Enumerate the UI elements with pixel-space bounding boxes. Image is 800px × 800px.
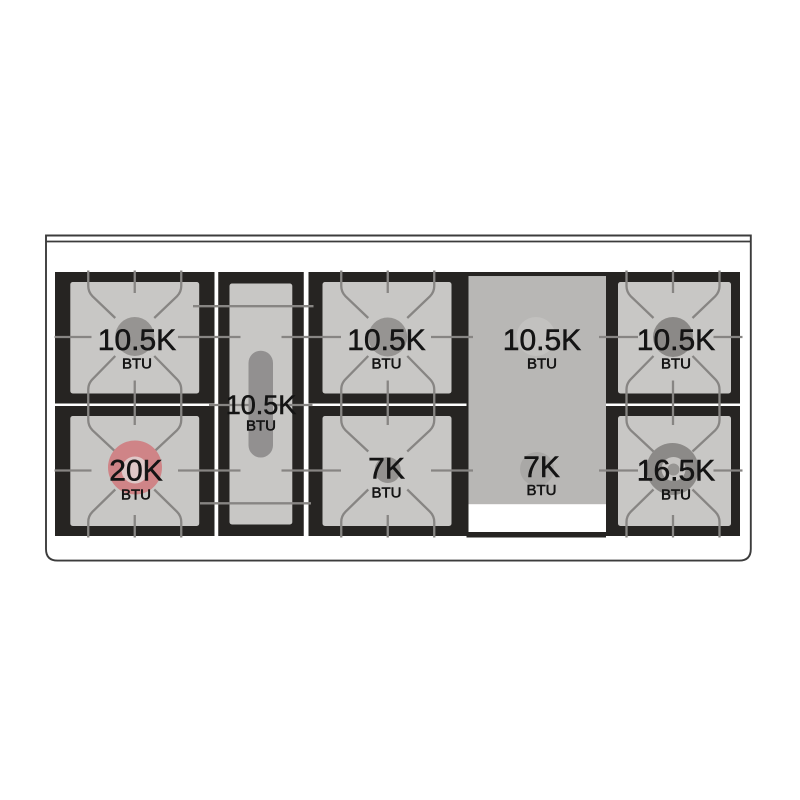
svg-text:BTU: BTU [661,355,691,372]
svg-text:20K: 20K [109,455,162,488]
svg-text:16.5K: 16.5K [637,455,715,488]
svg-text:BTU: BTU [527,355,557,372]
svg-text:BTU: BTU [121,487,151,504]
svg-text:BTU: BTU [246,418,276,435]
svg-text:10.5K: 10.5K [347,324,425,357]
svg-text:10.5K: 10.5K [226,390,297,420]
svg-text:BTU: BTU [661,487,691,504]
svg-text:10.5K: 10.5K [98,324,176,357]
svg-text:7K: 7K [368,453,405,486]
svg-text:BTU: BTU [527,482,557,499]
svg-text:10.5K: 10.5K [637,324,715,357]
svg-text:BTU: BTU [372,355,402,372]
svg-text:BTU: BTU [122,355,152,372]
svg-text:BTU: BTU [372,485,402,502]
svg-text:7K: 7K [523,451,560,484]
svg-text:10.5K: 10.5K [503,324,581,357]
